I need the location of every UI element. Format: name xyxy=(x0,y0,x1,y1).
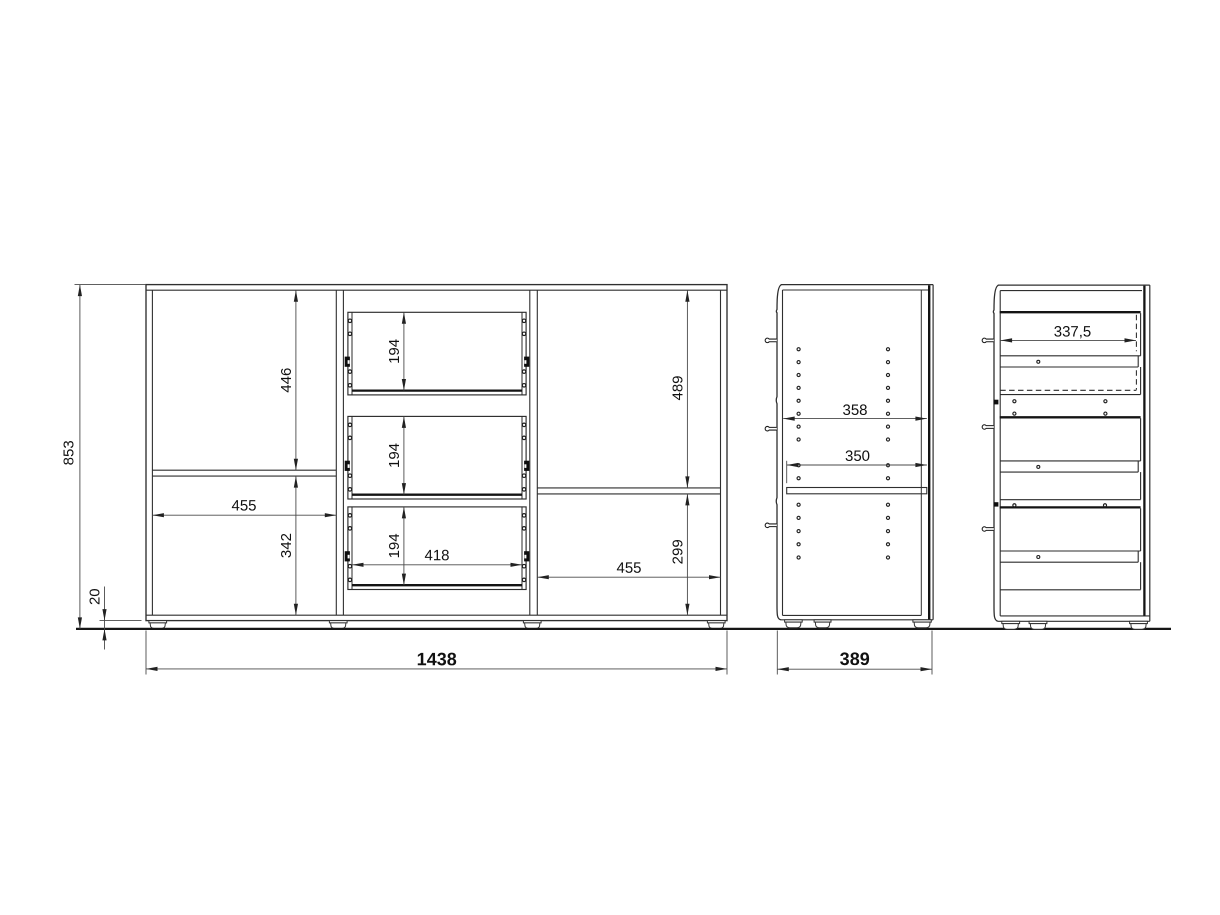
svg-text:853: 853 xyxy=(61,440,78,465)
svg-text:337,5: 337,5 xyxy=(1054,323,1092,340)
svg-text:194: 194 xyxy=(386,443,403,468)
svg-text:342: 342 xyxy=(278,533,295,558)
svg-text:1438: 1438 xyxy=(417,649,457,669)
svg-text:489: 489 xyxy=(670,375,687,400)
svg-text:358: 358 xyxy=(842,402,867,419)
svg-text:350: 350 xyxy=(845,448,870,465)
svg-text:455: 455 xyxy=(231,497,256,514)
svg-text:299: 299 xyxy=(670,539,687,564)
svg-text:446: 446 xyxy=(278,368,295,393)
svg-text:418: 418 xyxy=(424,547,449,564)
svg-text:194: 194 xyxy=(386,339,403,364)
svg-text:20: 20 xyxy=(87,588,104,605)
svg-text:389: 389 xyxy=(840,649,870,669)
svg-text:455: 455 xyxy=(616,560,641,577)
svg-text:194: 194 xyxy=(386,533,403,558)
